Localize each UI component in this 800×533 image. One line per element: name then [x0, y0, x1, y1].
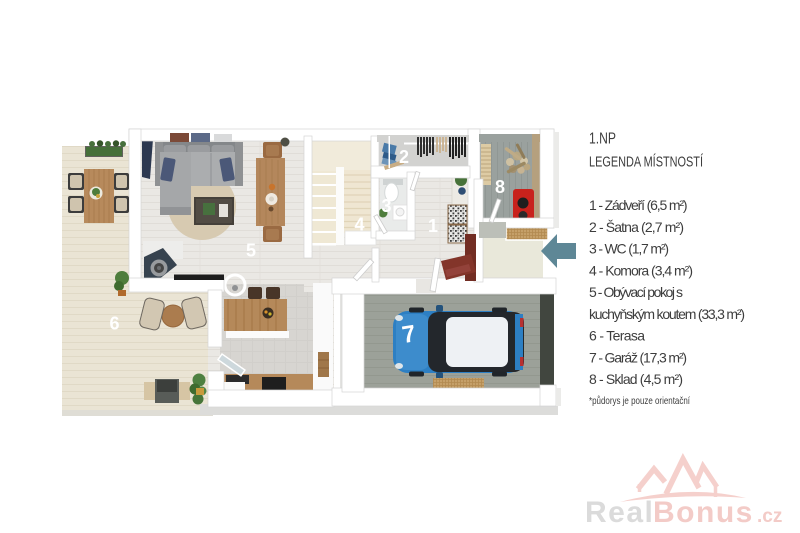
svg-text:2: 2 [399, 147, 409, 167]
svg-text:*půdorys je pouze orientační: *půdorys je pouze orientační [589, 395, 690, 407]
svg-text:Bonus: Bonus [653, 496, 754, 529]
svg-text:4: 4 [355, 215, 365, 235]
svg-text:5 - Obývací pokoj s: 5 - Obývací pokoj s [589, 284, 683, 300]
svg-text:Real: Real [585, 496, 654, 529]
svg-text:LEGENDA MÍSTNOSTÍ: LEGENDA MÍSTNOSTÍ [589, 154, 704, 171]
svg-text:8: 8 [495, 177, 505, 197]
svg-text:6: 6 [110, 314, 120, 334]
svg-text:1: 1 [428, 216, 438, 236]
svg-text:5: 5 [246, 241, 256, 261]
svg-text:4 - Komora (3,4 m²): 4 - Komora (3,4 m²) [589, 262, 693, 278]
svg-text:3: 3 [382, 196, 392, 216]
svg-text:.cz: .cz [757, 506, 782, 527]
svg-text:1.NP: 1.NP [589, 131, 616, 148]
svg-text:1 - Zádveří (6,5 m²): 1 - Zádveří (6,5 m²) [589, 197, 688, 213]
svg-text:kuchyňským koutem (33,3 m²): kuchyňským koutem (33,3 m²) [589, 306, 745, 322]
svg-text:8 - Sklad (4,5 m²): 8 - Sklad (4,5 m²) [589, 371, 683, 387]
svg-text:6 - Terasa: 6 - Terasa [589, 328, 645, 344]
svg-text:2 - Šatna (2,7 m²): 2 - Šatna (2,7 m²) [589, 219, 684, 235]
svg-text:3 - WC (1,7 m²): 3 - WC (1,7 m²) [589, 241, 669, 257]
svg-text:7 - Garáž (17,3 m²): 7 - Garáž (17,3 m²) [589, 349, 687, 365]
